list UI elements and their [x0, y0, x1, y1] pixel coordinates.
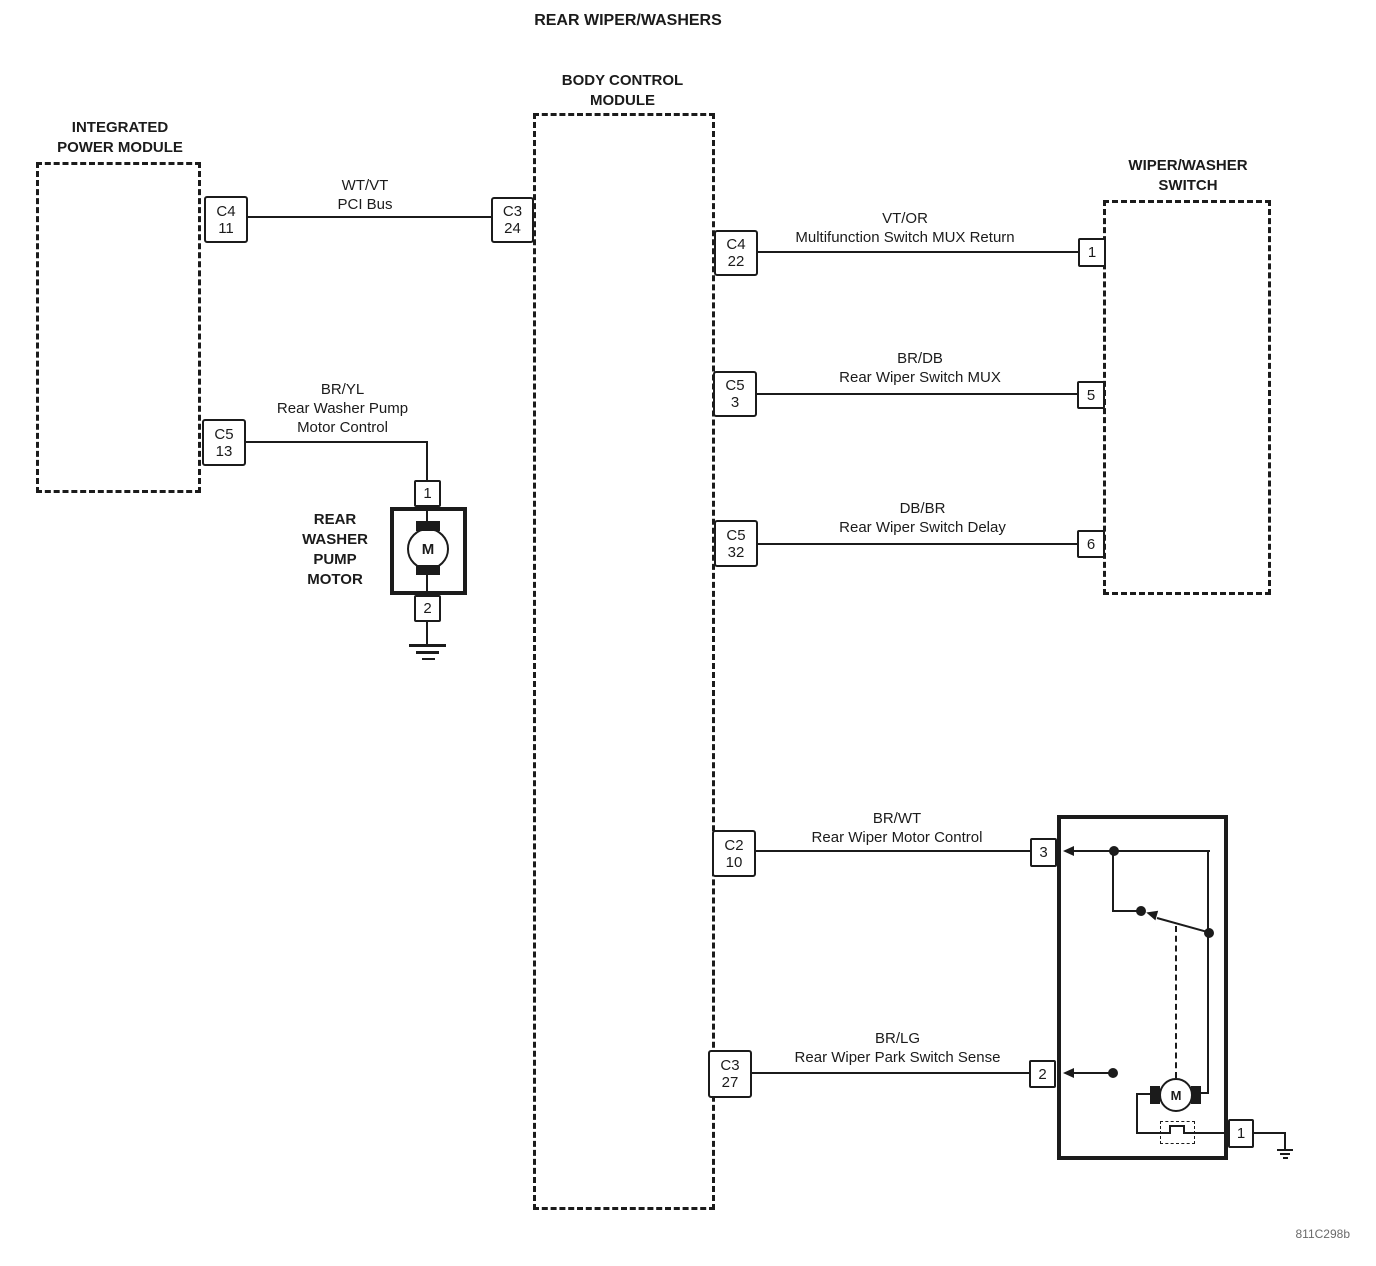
- motor-ground-line: [1136, 1132, 1162, 1134]
- connector-name: C4: [216, 203, 235, 220]
- wire-label-wiper-delay: DB/BR Rear Wiper Switch Delay: [775, 499, 1070, 537]
- bcm-box: [533, 113, 715, 1210]
- pin-wws-1: 1: [1078, 238, 1106, 267]
- washer-motor-title-line: WASHER: [285, 530, 385, 550]
- bcm-title: BODY CONTROL MODULE: [530, 71, 715, 111]
- park-sense-line: [1072, 1072, 1112, 1074]
- switch-contact-line: [1112, 851, 1114, 911]
- ground-icon: [1283, 1157, 1288, 1159]
- ipm-title: INTEGRATED POWER MODULE: [20, 118, 220, 158]
- wire-name: Rear Wiper Motor Control: [752, 828, 1042, 847]
- wire-washer-pump-h: [244, 441, 428, 443]
- ground-line: [1193, 1132, 1228, 1134]
- connector-name: C5: [725, 377, 744, 394]
- connector-pin: 24: [504, 220, 521, 237]
- wiring-diagram-canvas: REAR WIPER/WASHERS INTEGRATED POWER MODU…: [0, 0, 1376, 1266]
- wire-label-mux-return: VT/OR Multifunction Switch MUX Return: [760, 209, 1050, 247]
- pin-label: 3: [1039, 844, 1047, 861]
- connector-ipm-c5-13: C5 13: [202, 419, 246, 466]
- connector-bcm-c5-3: C5 3: [713, 371, 757, 417]
- motor-letter: M: [422, 541, 435, 558]
- washer-motor-title-line: PUMP: [285, 550, 385, 570]
- ground-icon: [416, 651, 439, 654]
- wire-name: Multifunction Switch MUX Return: [760, 228, 1050, 247]
- washer-motor-lead-bottom: [426, 573, 428, 595]
- ipm-title-line2: POWER MODULE: [20, 138, 220, 158]
- pin-label: 1: [423, 485, 431, 502]
- washer-motor-title: REAR WASHER PUMP MOTOR: [285, 510, 385, 590]
- wire-label-park-sense: BR/LG Rear Wiper Park Switch Sense: [750, 1029, 1045, 1067]
- motor-brush-icon: [416, 565, 440, 575]
- wire-label-motor-control: BR/WT Rear Wiper Motor Control: [752, 809, 1042, 847]
- wire-park-sense: [750, 1072, 1029, 1074]
- connector-bcm-c5-32: C5 32: [714, 520, 758, 567]
- wws-title: WIPER/WASHER SWITCH: [1098, 156, 1278, 196]
- motor-ground-line: [1137, 1093, 1151, 1095]
- connector-bcm-c2-10: C2 10: [712, 830, 756, 877]
- mechanical-linkage-line: [1175, 926, 1177, 1078]
- wire-motor-control: [754, 850, 1030, 852]
- pin-label: 1: [1088, 244, 1096, 261]
- park-switch-icon: [1184, 1132, 1193, 1134]
- wire-label-washer-pump: BR/YL Rear Washer Pump Motor Control: [250, 380, 435, 437]
- motor-feed-line: [1207, 851, 1209, 1094]
- connector-name: C2: [724, 837, 743, 854]
- motor-letter: M: [1171, 1088, 1182, 1103]
- connector-name: C5: [726, 527, 745, 544]
- switch-feed-line: [1072, 850, 1210, 852]
- ipm-box: [36, 162, 201, 493]
- wire-name: Rear Wiper Switch Delay: [775, 518, 1070, 537]
- connector-ipm-c4-11: C4 11: [204, 196, 248, 243]
- wire-name: Rear Wiper Switch MUX: [775, 368, 1065, 387]
- connector-pin: 3: [731, 394, 739, 411]
- pin-washer-motor-1: 1: [414, 480, 441, 507]
- connector-name: C5: [214, 426, 233, 443]
- park-contact-dot: [1108, 1068, 1118, 1078]
- washer-motor-title-line: MOTOR: [285, 570, 385, 590]
- wire-color-code: DB/BR: [775, 499, 1070, 518]
- bcm-title-line1: BODY CONTROL: [530, 71, 715, 91]
- bcm-title-line2: MODULE: [530, 91, 715, 111]
- motor-brush-icon: [416, 521, 440, 531]
- connector-pin: 32: [728, 544, 745, 561]
- wire-name: Rear Wiper Park Switch Sense: [750, 1048, 1045, 1067]
- wire-label-pci: WT/VT PCI Bus: [280, 176, 450, 214]
- wire-name: PCI Bus: [280, 195, 450, 214]
- page-title: REAR WIPER/WASHERS: [428, 12, 828, 30]
- connector-pin: 27: [722, 1074, 739, 1091]
- connector-name: C3: [720, 1057, 739, 1074]
- ground-stem: [426, 621, 428, 644]
- washer-motor-symbol: M: [407, 528, 449, 570]
- wire-wiper-delay: [756, 543, 1077, 545]
- ground-line: [1252, 1132, 1285, 1134]
- wire-color-code: VT/OR: [760, 209, 1050, 228]
- pin-label: 2: [1038, 1066, 1046, 1083]
- pin-wiper-motor-3: 3: [1030, 838, 1057, 867]
- connector-pin: 22: [728, 253, 745, 270]
- wire-wiper-mux: [755, 393, 1077, 395]
- wire-color-code: BR/YL: [250, 380, 435, 399]
- diagram-id: 811C298b: [1240, 1227, 1350, 1241]
- ground-icon: [1277, 1149, 1293, 1151]
- wire-color-code: BR/WT: [752, 809, 1042, 828]
- pin-wiper-motor-1: 1: [1228, 1119, 1254, 1148]
- wire-label-wiper-mux: BR/DB Rear Wiper Switch MUX: [775, 349, 1065, 387]
- wire-color-code: BR/LG: [750, 1029, 1045, 1048]
- arrowhead-icon: [1063, 1068, 1074, 1078]
- wiper-motor-symbol: M: [1159, 1078, 1193, 1112]
- motor-ground-line: [1136, 1093, 1138, 1134]
- pin-label: 5: [1087, 387, 1095, 404]
- connector-name: C4: [726, 236, 745, 253]
- wire-color-code: BR/DB: [775, 349, 1065, 368]
- ground-icon: [409, 644, 446, 647]
- connector-pin: 11: [218, 220, 234, 237]
- pivot-dot: [1204, 928, 1214, 938]
- pin-label: 6: [1087, 536, 1095, 553]
- pin-label: 2: [423, 600, 431, 617]
- wiper-motor-box: [1057, 815, 1228, 1160]
- pin-wws-6: 6: [1077, 530, 1105, 558]
- connector-pin: 10: [726, 854, 743, 871]
- ground-stem: [1284, 1132, 1286, 1149]
- ground-icon: [1280, 1153, 1290, 1155]
- wws-box: [1103, 200, 1271, 595]
- motor-brush-icon: [1150, 1086, 1160, 1104]
- connector-bcm-c4-22: C4 22: [714, 230, 758, 276]
- arrowhead-icon: [1063, 846, 1074, 856]
- wire-name: Motor Control: [250, 418, 435, 437]
- wire-name: Rear Washer Pump: [250, 399, 435, 418]
- junction-dot: [1109, 846, 1119, 856]
- pin-wws-5: 5: [1077, 381, 1105, 409]
- pin-wiper-motor-2: 2: [1029, 1060, 1056, 1088]
- ipm-title-line1: INTEGRATED: [20, 118, 220, 138]
- pin-label: 1: [1237, 1125, 1245, 1142]
- connector-name: C3: [503, 203, 522, 220]
- pin-washer-motor-2: 2: [414, 595, 441, 622]
- wws-title-line1: WIPER/WASHER: [1098, 156, 1278, 176]
- connector-pin: 13: [216, 443, 233, 460]
- wws-title-line2: SWITCH: [1098, 176, 1278, 196]
- wire-pci-bus: [246, 216, 492, 218]
- ground-icon: [422, 658, 435, 660]
- connector-bcm-c3-27: C3 27: [708, 1050, 752, 1098]
- washer-motor-title-line: REAR: [285, 510, 385, 530]
- connector-bcm-c3-24: C3 24: [491, 197, 534, 243]
- motor-brush-icon: [1191, 1086, 1201, 1104]
- wire-color-code: WT/VT: [280, 176, 450, 195]
- wire-washer-pump-v: [426, 441, 428, 481]
- wire-mux-return: [756, 251, 1078, 253]
- park-switch-icon: [1169, 1126, 1171, 1134]
